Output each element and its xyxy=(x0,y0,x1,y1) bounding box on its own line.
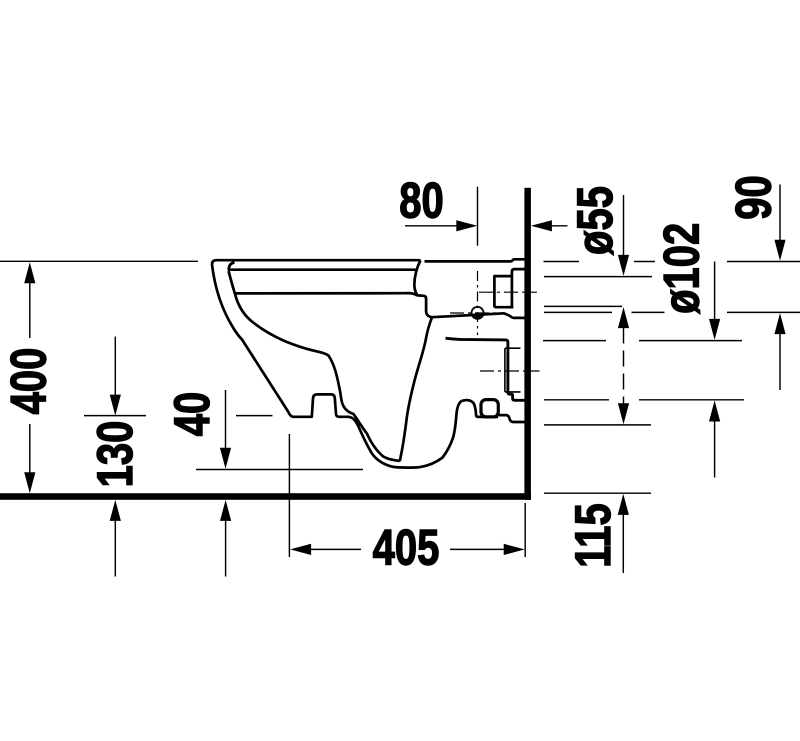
svg-text:ø102: ø102 xyxy=(653,223,709,314)
svg-text:400: 400 xyxy=(0,348,56,415)
svg-text:ø55: ø55 xyxy=(567,186,623,255)
svg-text:40: 40 xyxy=(164,392,220,436)
svg-text:90: 90 xyxy=(725,175,781,219)
svg-text:115: 115 xyxy=(565,503,621,568)
svg-text:405: 405 xyxy=(373,519,440,575)
svg-text:130: 130 xyxy=(87,421,143,488)
svg-text:80: 80 xyxy=(399,172,443,228)
